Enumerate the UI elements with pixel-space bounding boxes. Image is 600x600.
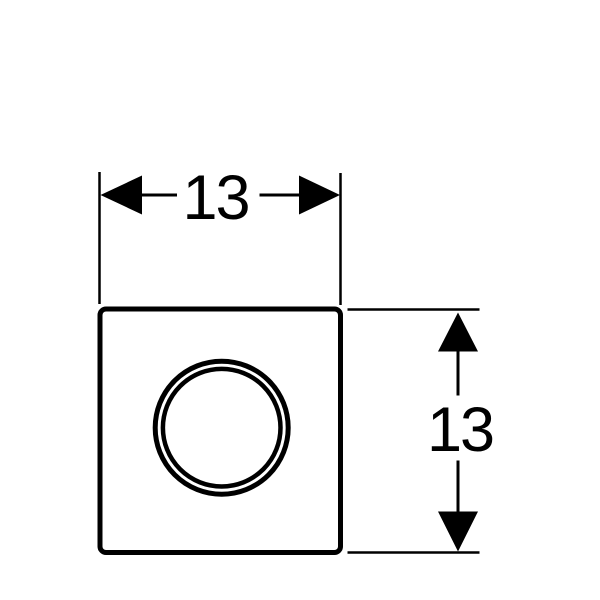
width-dimension-label: 13: [182, 163, 248, 233]
drawing-canvas: 13 13: [0, 0, 600, 600]
dimension-lines: [100, 172, 480, 553]
arrow-down-icon: [438, 512, 478, 552]
ring-inner-circle: [163, 369, 281, 487]
plate-outline: [100, 309, 341, 553]
height-dimension-label: 13: [427, 395, 493, 465]
dimension-drawing: 13 13: [0, 0, 600, 600]
object-outlines: [100, 309, 341, 553]
dimension-arrowheads: [101, 176, 479, 552]
dimension-labels: 13 13: [182, 163, 493, 465]
ring-outer-circle: [155, 361, 288, 494]
arrow-up-icon: [438, 313, 478, 352]
arrow-left-icon: [101, 176, 143, 215]
arrow-right-icon: [299, 176, 340, 215]
